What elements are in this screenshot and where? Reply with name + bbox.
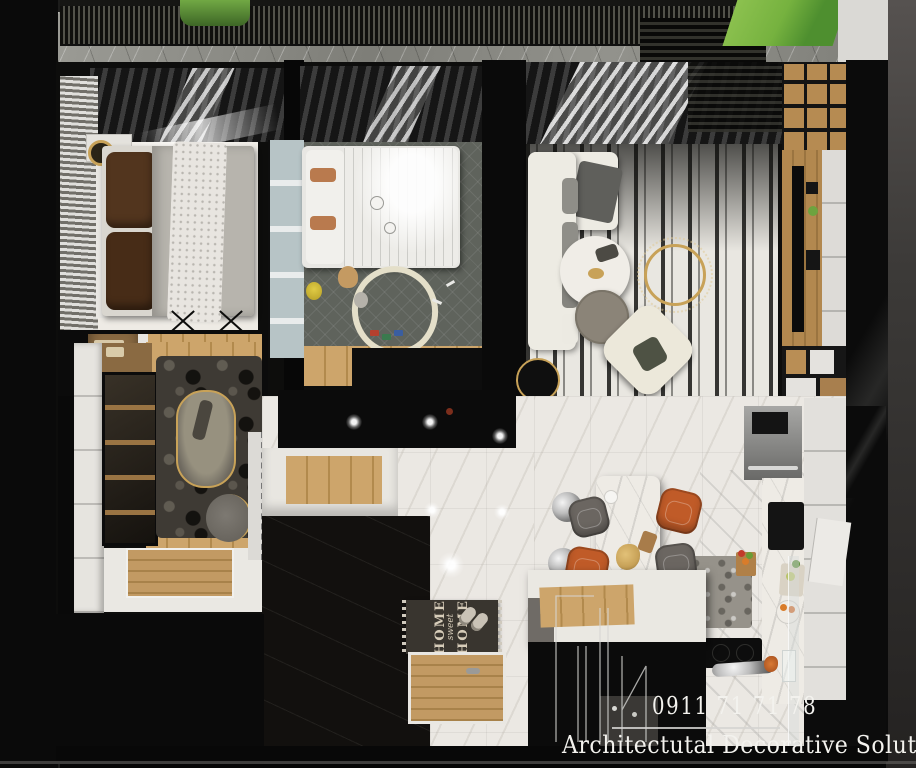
right-wall-edge [886,0,916,768]
shelf-box-white [810,350,834,374]
glass-wardrobe [102,372,158,546]
table-decor-gold-dish [588,268,604,279]
wardrobe-storage-box [106,347,124,357]
bed-pillow-brown [106,152,156,228]
tall-black-cabinet [846,60,888,746]
bathroom-door-panel [248,432,263,560]
ceiling-spotlight-glow [346,414,362,430]
lower-left-dark-wall [56,614,264,764]
tv-screen [792,166,804,332]
doormat-word-top: HOME [434,599,448,655]
ceiling-spotlight-glow [438,552,464,578]
plush-toy [338,266,358,288]
sofa-cushion [562,178,578,214]
door-knob-red [446,408,453,415]
vase-flowers-orange [764,656,778,672]
company-name: Architectutal Decorative Solutions [562,731,916,759]
pendant-lamp-icon [370,196,384,210]
ceiling-spotlight-glow [422,414,438,430]
bed-pillow-brown [106,232,156,310]
fruit [742,558,749,565]
doormat-fringe [402,600,406,654]
entrance-door [408,652,506,724]
kids-desk [352,348,482,390]
phone-underline [612,727,780,729]
garden-view [723,0,848,46]
kids-bed-duvet [344,148,458,266]
ceiling-spotlight-glow [492,428,508,444]
toy-train [382,334,391,340]
toy-train [370,330,379,336]
doormat-fringe [498,600,502,654]
hallway-storage-unit [278,390,516,448]
living-divider-wall [482,60,526,410]
balcony-plant [180,0,250,26]
exterior-white-wall [838,0,888,62]
oven-handle [748,466,798,470]
toilet-top-view [206,494,252,542]
console-wood-tray [286,456,382,504]
bathroom-cabinet-column [74,343,104,613]
bed-throw-white [167,141,227,323]
media-speaker [806,182,818,194]
toy-train [394,330,403,336]
orange-fruit [780,604,787,611]
apartment-top-view-render: HOME sweet HOME [0,0,916,768]
cooktop-burner-ring [712,644,730,662]
kids-pillow-orange [310,216,336,230]
glass-vase [782,650,796,682]
plush-toy [354,292,368,308]
fruit [738,550,745,557]
shelf-box-wood [786,350,806,374]
logo-building-lines [556,596,646,742]
bathroom-wood-mat [128,550,232,596]
left-wall-edge [0,0,60,768]
flower-vase-yellow [306,282,322,300]
company-logo-watermark [548,582,672,748]
countertop-microwave [768,502,804,550]
gold-ring-chandelier-icon [644,244,706,306]
bottom-frame-line [0,761,916,764]
master-window-blinds [60,76,98,332]
phone-number: 0911 71 71 78 [652,692,817,720]
pendant-lamp-icon [384,222,396,234]
ceiling-spotlight-glow [424,502,440,518]
oven-control-panel [752,412,788,434]
kids-pillow-orange [310,168,336,182]
display-cabinet-glass [782,62,856,154]
door-handle-icon [466,668,480,674]
table-plate [604,490,618,504]
cooktop-burner-ring [736,644,754,662]
media-speaker [806,250,820,270]
kids-wardrobe-mirror [268,140,304,358]
doormat: HOME sweet HOME [406,600,498,654]
ceiling-spotlight-glow [494,504,510,520]
shelf-plant-icon [808,206,818,216]
